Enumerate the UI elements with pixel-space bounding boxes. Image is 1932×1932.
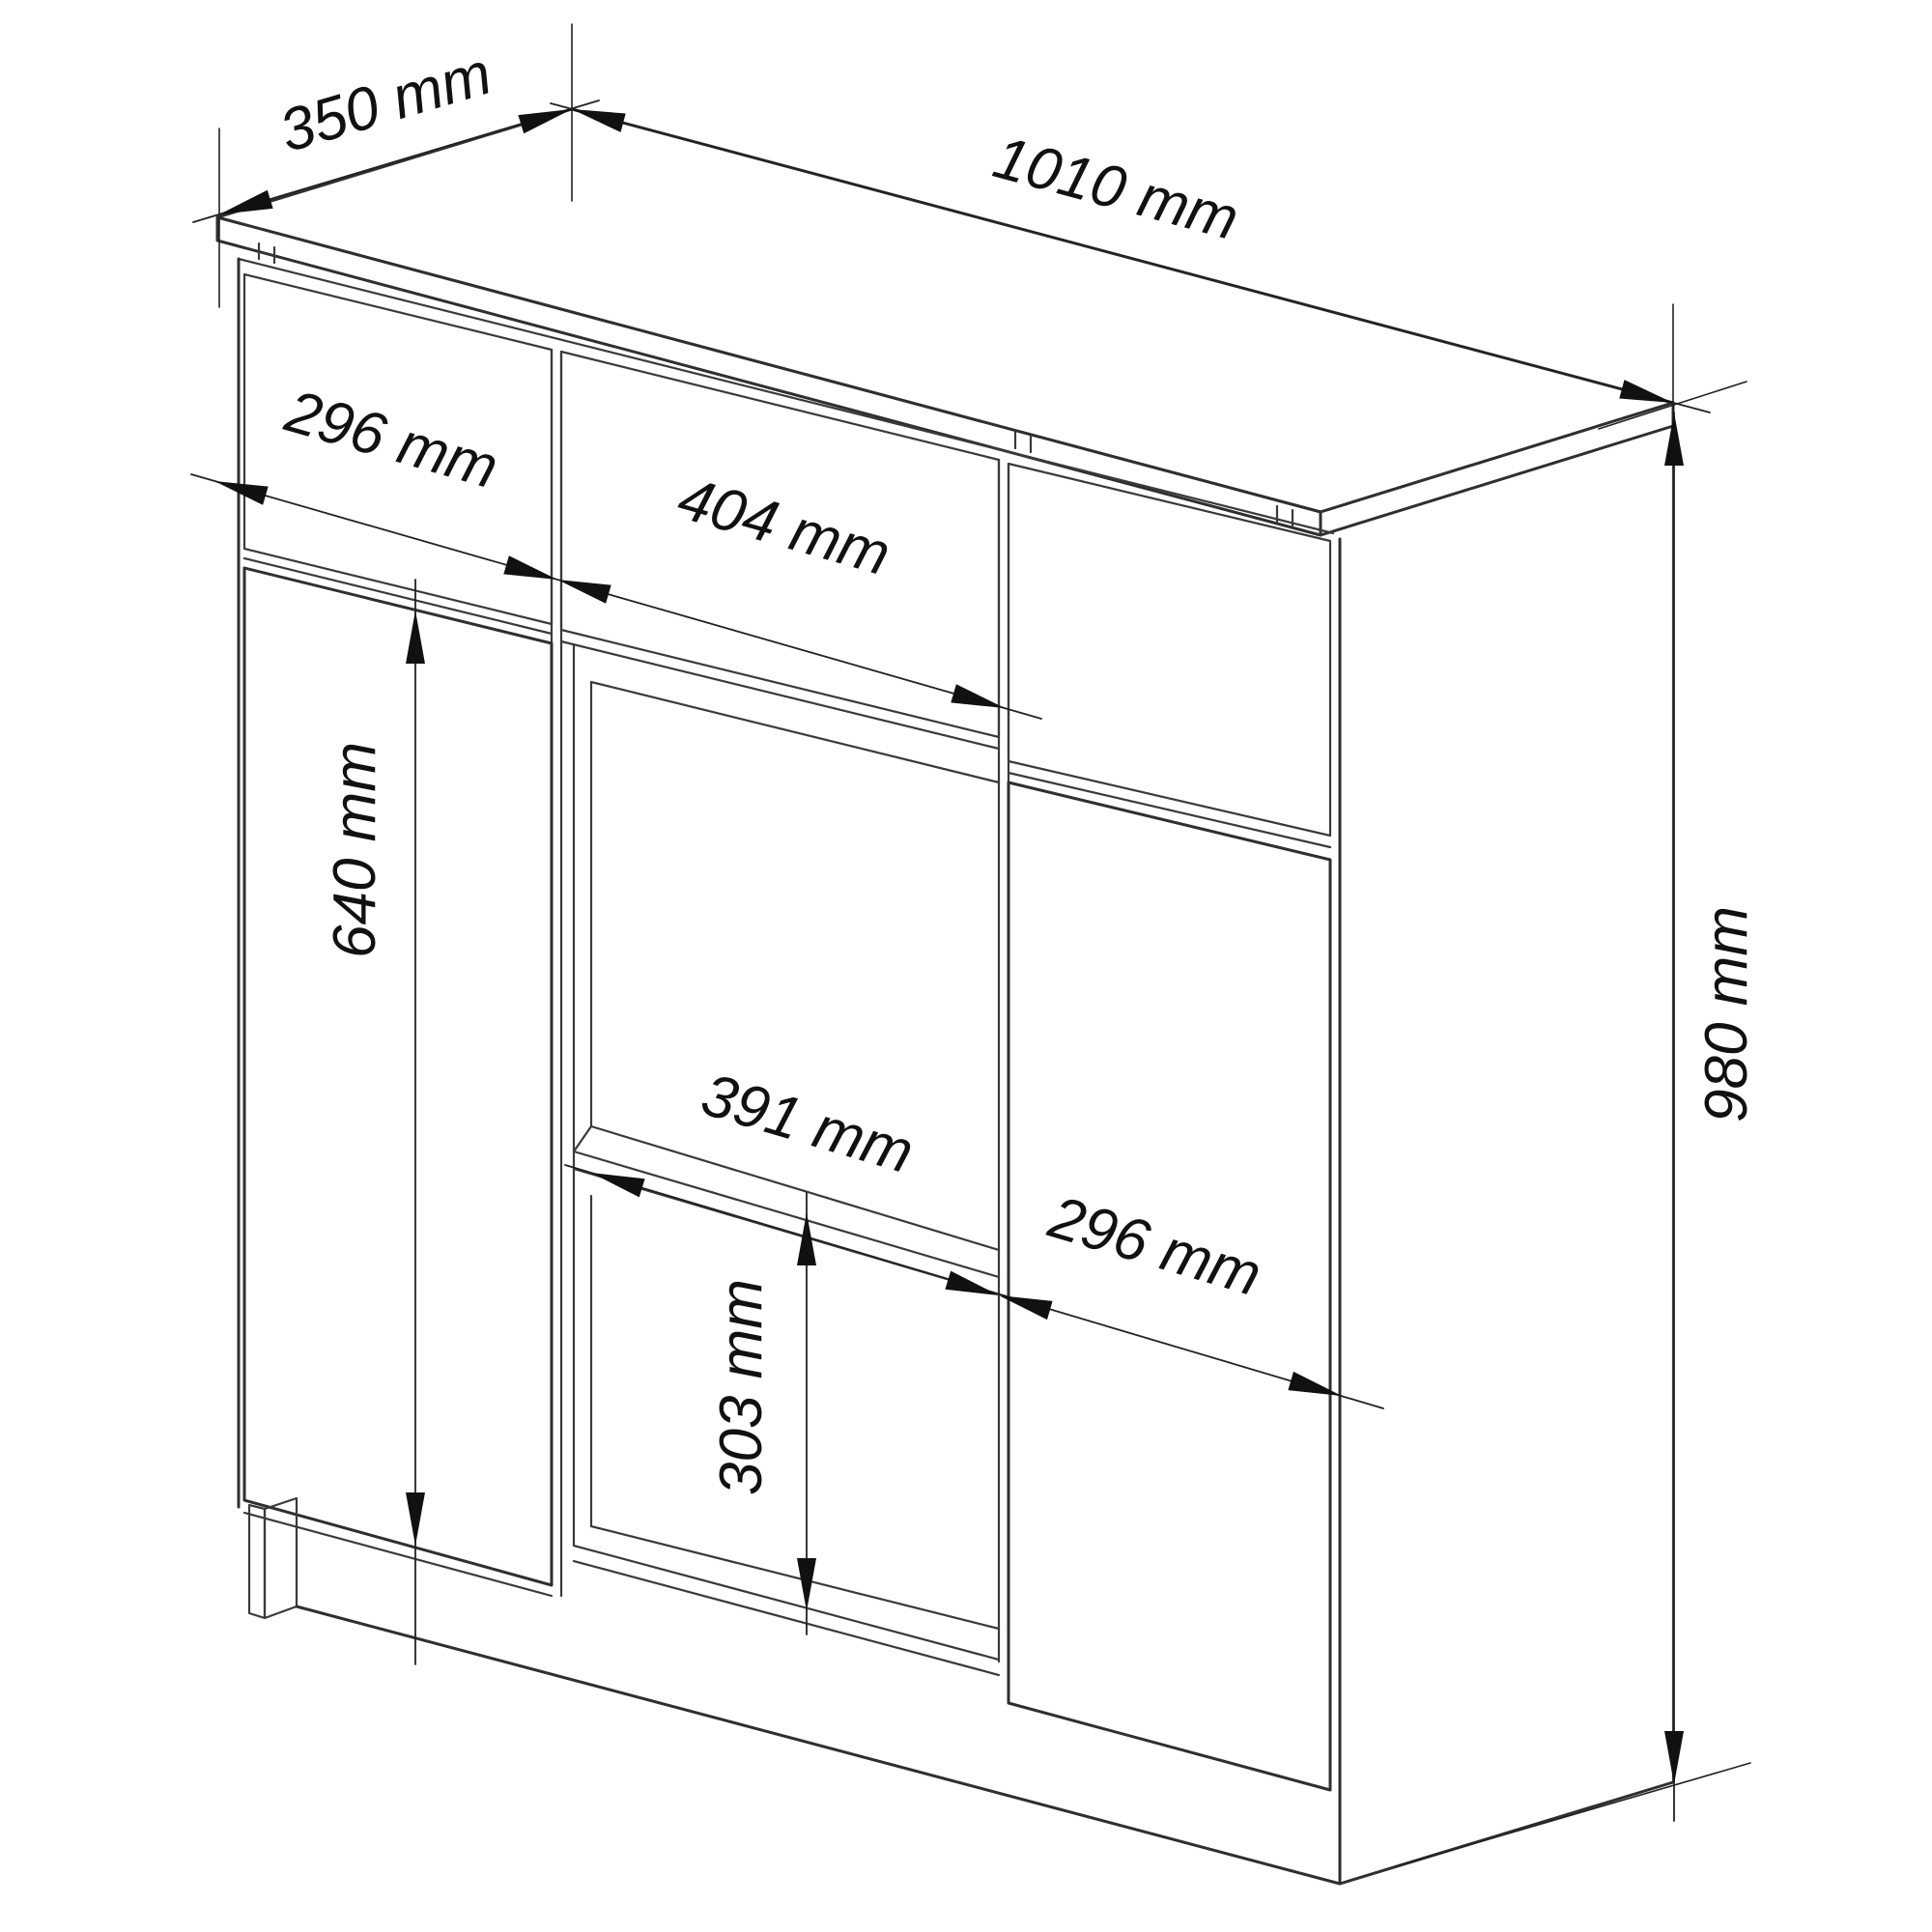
left-foot-side-face	[265, 1498, 297, 1618]
shelf-left-connector	[574, 1126, 591, 1151]
plinth-feet	[244, 1498, 1340, 1884]
dim-label-right-door: 296 mm	[1041, 1183, 1268, 1309]
dim-door-right-296: 296 mm	[999, 1183, 1342, 1396]
dim-label-left-drawer: 296 mm	[278, 378, 505, 501]
dim-label-middle-drawer: 404 mm	[670, 465, 896, 588]
arrowhead	[591, 1173, 645, 1197]
dim-door-left-640: 640 mm	[322, 580, 425, 1664]
arrowhead	[406, 611, 425, 664]
dim-shelf-391: 391 mm	[565, 1061, 1383, 1408]
dim-drawer-middle-404: 404 mm	[557, 465, 1005, 708]
compartment-bottom-back-edge	[591, 1526, 999, 1629]
cabinet-dimension-diagram: 350 mm 1010 mm 296 mm 404 mm	[0, 0, 1932, 1932]
under-door-edge	[244, 1513, 552, 1596]
shelf-front-top-edge	[574, 1151, 999, 1277]
left-foot-front-face	[249, 1505, 265, 1618]
arrowhead	[503, 555, 557, 580]
arrowhead	[406, 1492, 425, 1546]
dim-label-niche: 303 mm	[708, 1279, 775, 1495]
doors	[244, 568, 1330, 1790]
dim-line	[191, 474, 1041, 719]
arrowhead	[1288, 1372, 1342, 1396]
side-panel-floor-edge	[1340, 1782, 1673, 1884]
cabinet-drawing	[217, 109, 1673, 1884]
shelf-compartment	[574, 645, 999, 1675]
diagram-canvas: 350 mm 1010 mm 296 mm 404 mm	[0, 0, 1932, 1932]
drawer-gap-lines	[244, 558, 1330, 847]
arrowhead	[1664, 1731, 1684, 1784]
dim-height-980: 980 mm	[1396, 412, 1760, 1866]
compartment-ceiling-back-edge	[591, 682, 999, 782]
dim-label-left-door: 640 mm	[322, 742, 388, 958]
ext-line	[1396, 1763, 1750, 1866]
compartment-bottom-front-edge	[574, 1546, 999, 1660]
arrowhead	[214, 481, 269, 505]
right-door-front	[1009, 782, 1330, 1790]
plinth-bottom-edge	[297, 1606, 1340, 1884]
arrowhead	[999, 1295, 1053, 1320]
left-door-front	[244, 568, 552, 1585]
arrowhead	[951, 684, 1005, 708]
dim-label-height: 980 mm	[1693, 906, 1760, 1122]
arrowhead	[797, 1558, 816, 1611]
arrowhead	[557, 580, 611, 604]
compartment-bottom-band	[574, 1561, 999, 1675]
